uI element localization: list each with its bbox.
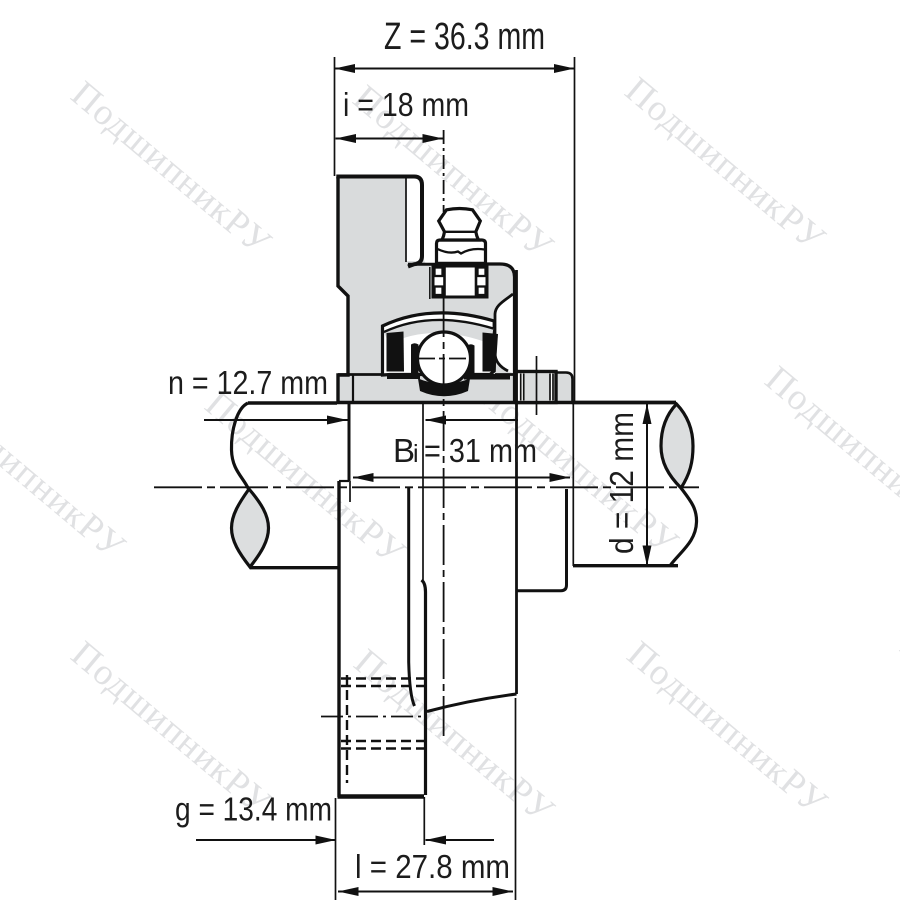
svg-text:n = 12.7 mm: n = 12.7 mm — [168, 364, 328, 401]
svg-text:Z = 36.3 mm: Z = 36.3 mm — [384, 16, 545, 58]
svg-text:g = 13.4 mm: g = 13.4 mm — [175, 791, 332, 828]
svg-text:l = 27.8 mm: l = 27.8 mm — [355, 848, 510, 885]
svg-text:d = 12 mm: d = 12 mm — [603, 412, 640, 554]
svg-text:i: i — [413, 440, 419, 468]
svg-text:i = 18 mm: i = 18 mm — [343, 86, 469, 123]
svg-text:B: B — [393, 432, 415, 469]
svg-text:= 31 mm: = 31 mm — [424, 432, 537, 469]
